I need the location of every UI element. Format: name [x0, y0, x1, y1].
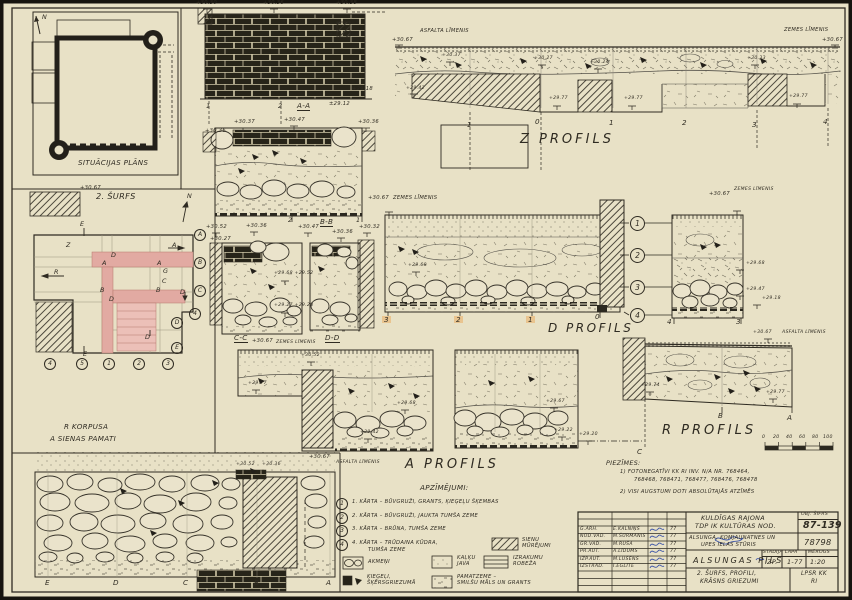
elevation-label: +29.18 [762, 297, 781, 302]
column-profile [645, 215, 743, 324]
note-line: 768468, 768471, 768477, 768476, 768478 [634, 478, 758, 483]
legend-item: 4. KĀRTA – TRŪDAINA KŪDRA, [352, 541, 438, 546]
axis-label: 2 [288, 217, 292, 223]
level-label: ZEMES LĪMENIS [393, 196, 437, 201]
elevation-label: +29.67 [546, 400, 565, 405]
titleblock-name: M.ŠŪRMANIS [613, 535, 646, 540]
elevation-label: +30.36 [263, 1, 284, 6]
grid-letter: C [183, 579, 188, 586]
level-label: ZEMES LĪMENIS [734, 188, 774, 193]
section-mark: B [100, 287, 105, 293]
section-mark: A [102, 260, 107, 266]
elevation-label: +29.77 [624, 97, 643, 102]
elevation-label: +30.36 [358, 120, 379, 125]
grid-circle: 2 [133, 358, 145, 370]
elevation-label: +29.42 [360, 431, 379, 436]
section-mark: A [172, 242, 177, 248]
elevation-label: +30.36 [246, 224, 267, 229]
titleblock-role: GR.VAD. [580, 543, 601, 548]
elevation-label: +29.42 [406, 87, 425, 92]
titleblock-sheet: 2. ŠURFS, PROFILI, [697, 572, 756, 578]
scale-label: 20 [773, 436, 779, 441]
grid-circle: C [194, 285, 206, 297]
elevation-label: +30.24 [590, 61, 609, 66]
axis-label: 0 [595, 313, 600, 320]
titleblock-value: 1-77 [787, 559, 803, 565]
legend-item: 3. KĀRTA – BRŪNA, TUMŠA ZEME [352, 527, 446, 532]
legend-title: APZĪMĒJUMI: [420, 484, 468, 491]
grid-circle: 1 [103, 358, 115, 370]
grid-circle: D [171, 317, 183, 329]
grid-circle: 3 [162, 358, 174, 370]
section-mark: B [156, 287, 161, 293]
grid-circle: 4 [44, 358, 56, 370]
legend-item: ROBEŽA [513, 562, 536, 567]
elevation-label: +30.36 [262, 463, 281, 468]
note-line: 2) VISI AUGSTUMI DOTI ABSOLŪTAJĀS ATZĪMĒ… [620, 490, 754, 495]
titleblock-value: IZP. [765, 559, 777, 565]
axis-label: 3 [752, 121, 757, 128]
grid-circle: 4 [189, 308, 201, 320]
grid-letter: A [326, 579, 331, 586]
scale-label: 100 [823, 436, 833, 441]
elevation-label: +29.77 [549, 97, 568, 102]
level-label: ASFALTA LĪMENIS [782, 331, 826, 336]
elevation-label: +30.27 [210, 237, 231, 242]
titleblock-org: KULDĪGAS RAJONA [701, 515, 765, 521]
section-mark: D [145, 334, 150, 340]
grid-letter: D [113, 579, 119, 586]
titleblock-date: 77 [670, 543, 676, 548]
profile-title: Z PROFILS [520, 133, 614, 146]
section-mark: E [83, 351, 87, 357]
grid-letter: B [254, 579, 259, 586]
legend-item: SMILŠU MĀLS UN GRANTS [457, 581, 531, 586]
section-mark: A [157, 260, 162, 266]
legend-item: ŠĶĒRSGRIEZUMĀ [367, 581, 416, 586]
drawing-sheet: N SITUĀCIJAS PLĀNS +30.67 2. ŠURFS N E Z… [0, 0, 852, 600]
titleblock-header: LAPA [785, 551, 798, 556]
legend-item: MŪRĒJUMI [522, 544, 551, 549]
section-aa [198, 8, 385, 126]
elevation-label: +30.47 [284, 118, 305, 123]
axis-label: 3 [736, 318, 741, 325]
section-mark: C [162, 278, 167, 284]
layer-number: 2 [336, 512, 348, 524]
elevation-label: +30.67 [252, 339, 273, 344]
section-title: D-D [325, 334, 340, 343]
elevation-label: +29.27 +29.28 [274, 304, 313, 309]
elevation-label: +30.37 [234, 120, 255, 125]
elevation-label: ±29.12 [329, 102, 350, 107]
legend-item: AKMEŅI [368, 560, 390, 565]
titleblock-org: TDP IK KULTŪRAS NOD. [695, 523, 776, 529]
titleblock-archive: RI [811, 580, 817, 586]
z-profile [395, 47, 840, 170]
titleblock-role: IZSTRĀD. [580, 565, 604, 570]
axis-label: 1 [206, 103, 210, 109]
elevation-label: +30.47 [298, 225, 319, 230]
layer-number: 3 [630, 280, 645, 295]
section-mark: D [109, 296, 114, 302]
axis-label: 0 [535, 118, 540, 125]
section-title: C-C [234, 334, 248, 343]
elevation-label: +29.22 [554, 429, 573, 434]
level-label: ZEMES LĪMENIS [784, 28, 828, 33]
drawing-layer [0, 0, 852, 600]
north-label: N [42, 14, 47, 20]
section-mark: G [163, 268, 168, 274]
profile-title: R PROFILS [662, 424, 756, 437]
titleblock-archive: LPSR KK [801, 572, 827, 578]
grid-letter: E [45, 579, 50, 586]
titleblock-role: PR.AUT. [580, 550, 600, 555]
elevation-label: +30.27 [534, 57, 553, 62]
elevation-label: +30.67 [309, 455, 330, 460]
grid-circle: B [194, 257, 206, 269]
legend-item: TUMŠA ZEME [368, 548, 406, 553]
grid-letter: B [718, 412, 723, 419]
titleblock-header: MĒROGS [808, 551, 830, 556]
legend-item: 2. KĀRTA – BŪVGRUŽI, JAUKTA TUMŠA ZEME [352, 514, 478, 519]
titleblock-date: 77 [670, 535, 676, 540]
foundation-title: A SIENAS PAMATI [50, 435, 116, 442]
foundation-drawing [35, 452, 335, 591]
level-label: ASFALTA LĪMENIS [336, 461, 380, 466]
elevation-label: +30.30 [196, 1, 217, 6]
elevation-label: +30.67 [368, 196, 389, 201]
scale-label: 0 [762, 436, 765, 441]
layer-number: 3 [336, 525, 348, 537]
titleblock-role: NOD.VAD. [580, 535, 605, 540]
grid-circle: E [171, 342, 183, 354]
titleblock-sheet: KRĀSNS GRIEZUMI [700, 580, 759, 586]
grid-letter: A [787, 414, 792, 421]
layer-number: 2 [630, 248, 645, 263]
section-mark: D [180, 289, 185, 295]
titleblock-code-label: OBJ. ŠIFRS [801, 513, 828, 518]
titleblock-name: I.EGLĪTE [613, 565, 634, 570]
section-title: A-A [297, 102, 310, 111]
elevation-label: +29.47 [746, 288, 765, 293]
titleblock-address: UPES IELAS STŪRIS [701, 543, 756, 548]
profile-title: A PROFILS [405, 458, 499, 471]
titleblock-name: E.KALNIŅŠ [613, 528, 640, 533]
titleblock-name: M.RUŠA [613, 543, 633, 548]
titleblock-value: 1:20 [810, 559, 826, 565]
axis-label: 4 [667, 318, 672, 325]
foundation-title: R KORPUSA [64, 423, 108, 430]
layer-number: 1 [630, 216, 645, 231]
elevation-label: +29.77 [789, 95, 808, 100]
elevation-label: +30.52 [206, 225, 227, 230]
axis-label: -1 [464, 121, 472, 128]
scale-label: 40 [786, 436, 792, 441]
titleblock-date: 77 [670, 558, 676, 563]
legend-item: 1. KĀRTA – BŪVGRUŽI, GRANTS, ĶIEĢEĻU ŠĶE… [352, 500, 499, 505]
elevation-label: +30.67 [709, 192, 730, 197]
axis-label: 1 [609, 119, 614, 126]
elevation-label: +30.36 [205, 129, 226, 134]
grid-circle: 5 [76, 358, 88, 370]
elevation-label: +30.33 [747, 57, 766, 62]
section-mark: D [111, 252, 116, 258]
layer-number: 1 [336, 498, 348, 510]
layer-number: 4 [336, 539, 348, 551]
titleblock-date: 77 [670, 528, 676, 533]
note-line: 1) FOTONEGATĪVI KK RI INV. N/A NR. 76846… [620, 470, 750, 475]
elevation-label: +29.74 [641, 384, 660, 389]
elevation-label: +29.18 [352, 87, 373, 92]
elevation-label: +30.37 [442, 54, 461, 59]
scale-label: 80 [812, 436, 818, 441]
titleblock-date: 77 [670, 550, 676, 555]
titleblock-name: A.LĪDUMS [613, 550, 638, 555]
elevation-label: +30.67 [753, 331, 772, 336]
scale-label: 60 [799, 436, 805, 441]
elevation-label: +30.67 [822, 38, 843, 43]
elevation-label: +29.68 [408, 264, 427, 269]
elevation-label: +29.20 [579, 433, 598, 438]
titleblock-number: 78798 [804, 538, 832, 546]
axis-label: 2 [454, 316, 463, 323]
elevation-label: +29.68 [746, 262, 765, 267]
legend-item: JAVA [457, 562, 470, 567]
profile-title: D PROFILS [548, 322, 633, 334]
axis-label: 2 [682, 119, 687, 126]
scale-bar [765, 442, 833, 450]
level-label: ZEMES LĪMENIS [276, 341, 316, 346]
section-mark: E [80, 221, 84, 227]
north-label: N [187, 193, 192, 199]
titleblock-name: M.LŪSĒNS [613, 558, 639, 563]
section-mark: Z [66, 242, 71, 248]
elevation-label: +29.77 [248, 382, 267, 387]
elevation-label: +30.32 [359, 225, 380, 230]
titleblock-address: ALSUNGA, KOMJAUNATNES UN [689, 536, 775, 541]
surfs-plan-title: 2. ŠURFS [96, 192, 136, 200]
elevation-label: +29.68 +29.52 [274, 272, 313, 277]
section-cc [210, 241, 302, 334]
titleblock-code: 87-139 [803, 521, 842, 531]
elevation-label: +30.52 [301, 354, 320, 359]
situation-plan-title: SITUĀCIJAS PLĀNS [78, 159, 148, 166]
grid-circle: A [194, 229, 206, 241]
elevation-label: +30.67 [392, 38, 413, 43]
section-dd [310, 240, 374, 332]
elevation-label: +30.52 [236, 463, 255, 468]
section-title: B-B [320, 218, 333, 227]
axis-label: 1 [356, 217, 360, 223]
elevation-label: +30.36 [332, 230, 353, 235]
titleblock-header: STADIJA [763, 551, 783, 556]
d-profile [385, 200, 629, 318]
level-label: ASFALTA LĪMENIS [420, 29, 469, 34]
titleblock-role: IZP.AUT. [580, 558, 601, 563]
section-mark: R [54, 269, 59, 275]
situation-plan [32, 12, 178, 175]
elevation-label: +30.38 [336, 1, 357, 6]
section-bb [203, 127, 375, 222]
axis-label: 3 [382, 316, 391, 323]
elevation-label: +29.77 [766, 391, 785, 396]
axis-label: 2 [278, 103, 282, 109]
axis-label: 1 [526, 316, 535, 323]
grid-letter: C [637, 448, 642, 455]
elevation-label: +29.68 [397, 402, 416, 407]
notes-title: PIEZĪMES: [606, 460, 641, 466]
titleblock-role: G.ARH. [580, 528, 598, 533]
axis-label: 4 [823, 118, 828, 125]
titleblock-date: 77 [670, 565, 676, 570]
